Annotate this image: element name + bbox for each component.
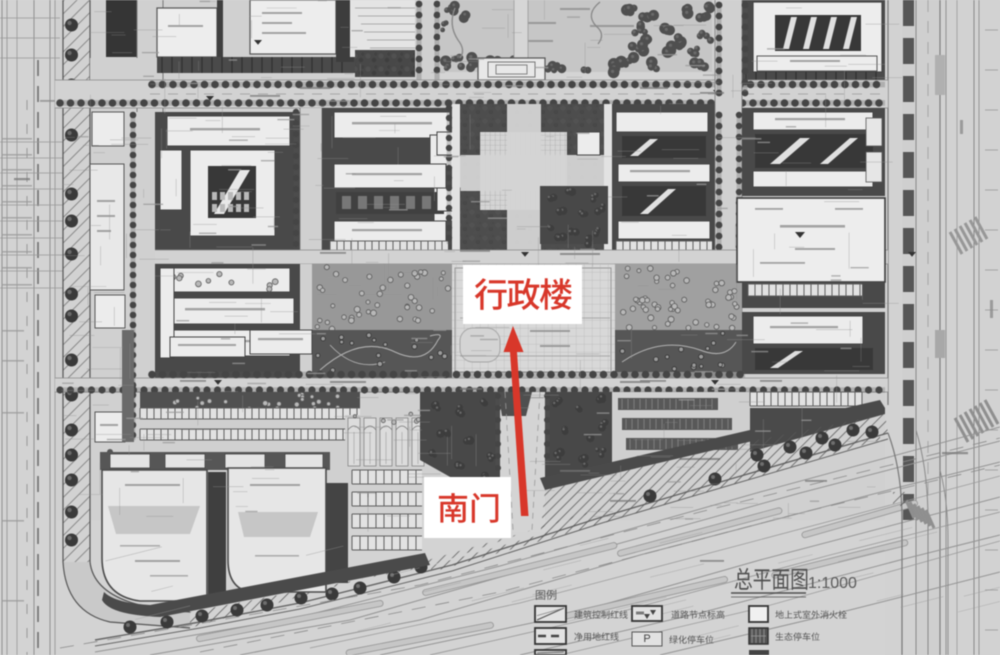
svg-text:1:1000: 1:1000 xyxy=(808,575,857,592)
svg-text:P: P xyxy=(643,633,650,645)
